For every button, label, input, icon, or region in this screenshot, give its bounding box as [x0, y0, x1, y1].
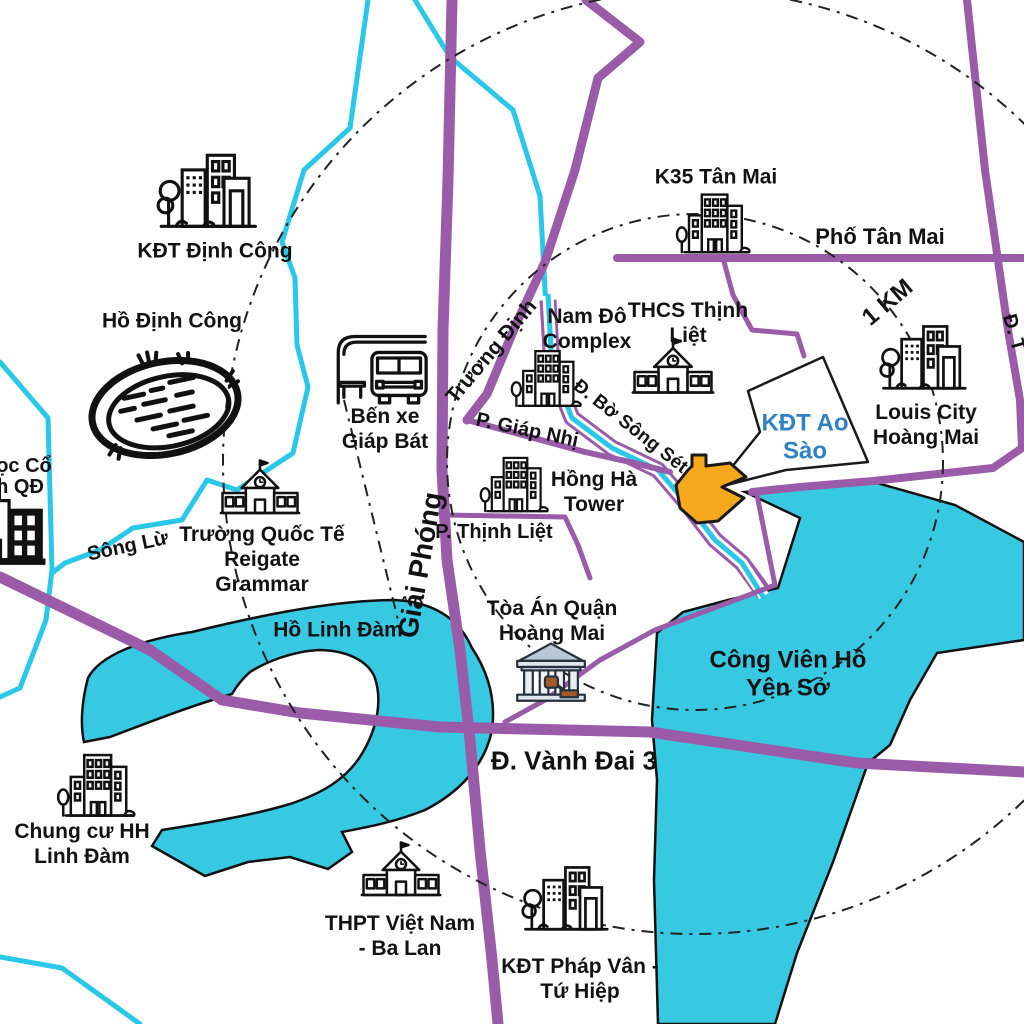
label-kdt-phap-van: KĐT Pháp Vân -Tứ Hiệp [501, 955, 659, 1005]
label-nam-do-complex: Nam ĐôComplex [543, 305, 632, 355]
school-icon-thpt-viet-nam-ba-lan [355, 840, 447, 910]
river-bottom-left [0, 957, 140, 1024]
label-ho-linh-dam: Hồ Linh Đàm [273, 619, 403, 644]
label-hong-ha-tower: Hồng HàTower [551, 468, 637, 518]
label-louis-city: Louis CityHoàng Mai [873, 401, 979, 451]
city-icon-kdt-dinh-cong [155, 140, 270, 250]
label-ho-dinh-cong: Hồ Định Công [102, 310, 242, 335]
label-thcs-thinh-liet: THCS ThịnhLiệt [628, 299, 748, 349]
label-ben-xe-giap-bat: Bến xeGiáp Bát [342, 405, 428, 455]
label-kdt-dinh-cong: KĐT Định Công [137, 240, 292, 265]
label-kdt-ao-sao: KĐT AoSào [761, 410, 848, 467]
label-toa-an-hoang-mai: Tòa Án QuậnHoàng Mai [487, 597, 618, 647]
label-road-p-thinh-liet: P. Thịnh Liệt [435, 521, 552, 545]
label-k35-tan-mai: K35 Tân Mai [655, 166, 778, 191]
apartment-icon-chung-cu-hh [54, 748, 138, 826]
apartment-icon-nam-do [508, 345, 584, 415]
park-cong-vien-yen-so [652, 481, 1024, 1024]
courthouse-icon-toa-an [512, 640, 590, 706]
apartment-icon-hong-ha-tower [477, 452, 551, 520]
label-truong-quoc-te-reigate: Trường Quốc TếReigateGrammar [179, 523, 344, 597]
label-thpt-viet-nam-ba-lan: THPT Việt Nam- Ba Lan [325, 912, 475, 962]
city-icon-louis-city [878, 317, 978, 405]
label-hospital-fragment-2: n QĐ [0, 476, 44, 500]
city-icon-kdt-phap-van [520, 858, 620, 946]
label-chung-cu-hh: Chung cư HHLinh Đàm [14, 820, 149, 870]
apartment-icon-k35-tan-mai [673, 188, 753, 262]
river-song-lu-upper [52, 0, 368, 573]
label-cong-vien-yen-so: Công Viên HồYên Sở [710, 647, 867, 704]
label-road-vanh-dai-3: Đ. Vành Đai 3 [491, 746, 657, 777]
map-canvas: KĐT Định Công Hồ Định Công Bến xeGiáp Bá… [0, 0, 1024, 1024]
lake-sketch-ho-dinh-cong [81, 335, 250, 468]
school-icon-reigate-grammar [214, 458, 306, 528]
bus-station-icon-giap-bat [328, 330, 442, 416]
label-road-pho-tan-mai: Phố Tân Mai [815, 224, 945, 250]
